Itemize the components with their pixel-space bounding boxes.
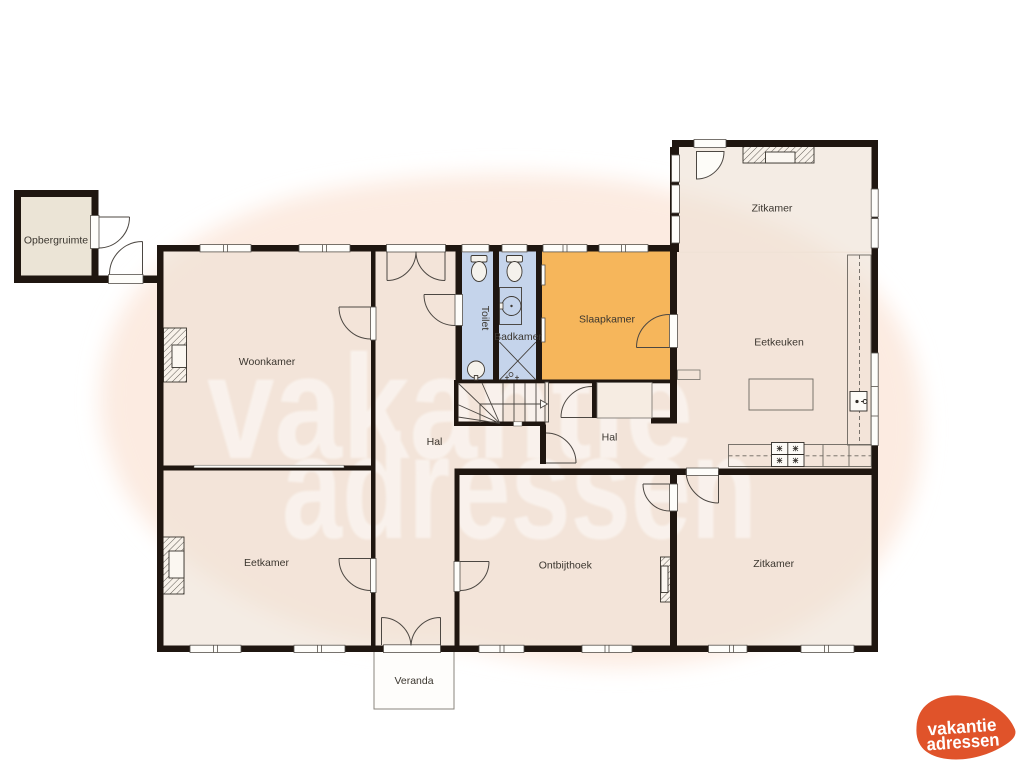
svg-text:Woonkamer: Woonkamer: [239, 356, 296, 368]
svg-text:Veranda: Veranda: [394, 675, 433, 687]
svg-text:Zitkamer: Zitkamer: [753, 558, 794, 570]
svg-text:Toilet: Toilet: [479, 306, 491, 331]
svg-text:Badkamer: Badkamer: [494, 331, 542, 343]
svg-text:Hal: Hal: [602, 432, 618, 444]
svg-text:Zitkamer: Zitkamer: [752, 203, 793, 215]
svg-text:Opbergruimte: Opbergruimte: [24, 235, 88, 247]
svg-text:adressen: adressen: [282, 405, 757, 570]
svg-text:Slaapkamer: Slaapkamer: [579, 314, 636, 326]
svg-text:Eetkamer: Eetkamer: [244, 557, 289, 569]
svg-text:Ontbijthoek: Ontbijthoek: [539, 560, 593, 572]
svg-text:Eetkeuken: Eetkeuken: [754, 337, 804, 349]
svg-text:Hal: Hal: [427, 436, 443, 448]
